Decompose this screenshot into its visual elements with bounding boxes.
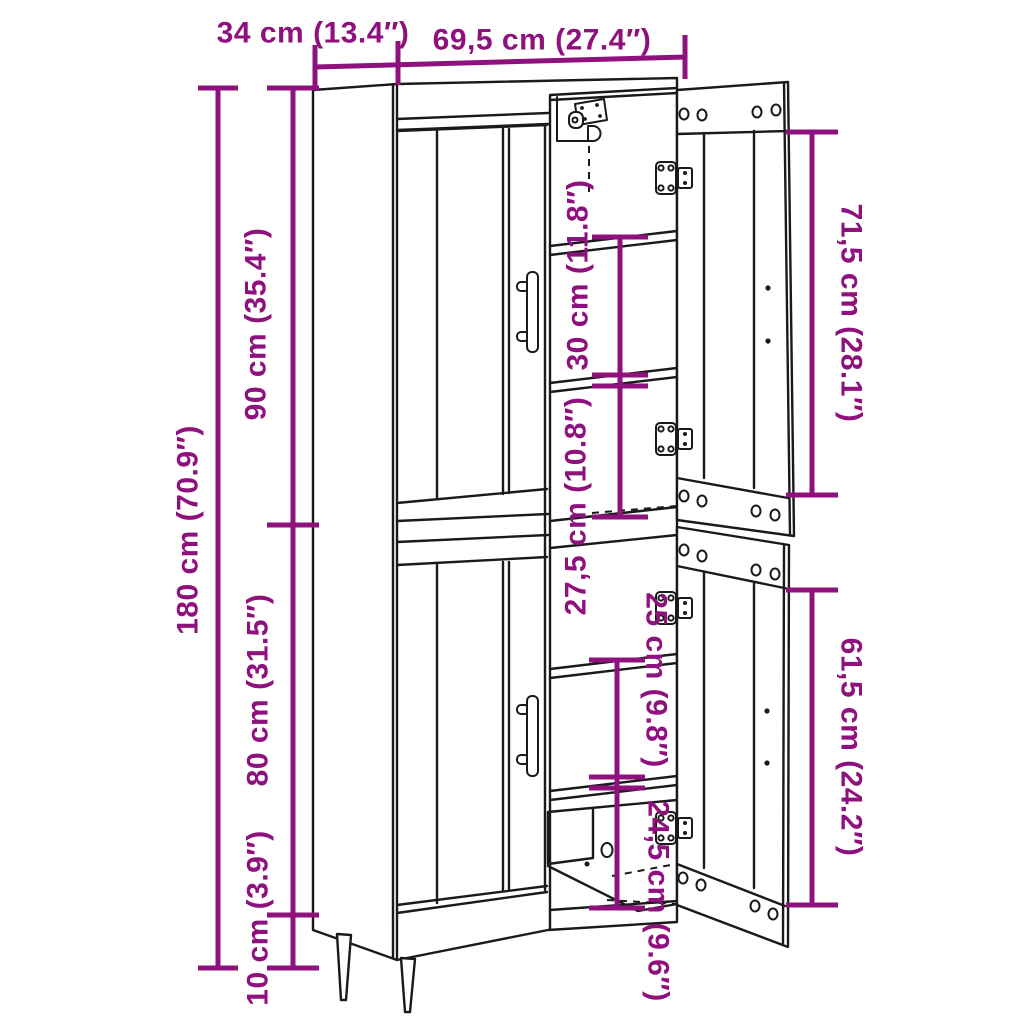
dimension-line — [786, 590, 838, 905]
screw — [683, 601, 687, 605]
dimension-label-lower-section: 80 cm (31.5″) — [242, 594, 275, 787]
dimension-upper-door: 71,5 cm (28.1″) — [786, 132, 868, 495]
legs — [337, 934, 415, 1012]
dimension-label-upper-lower-gap: 27,5 cm (10.8″) — [560, 397, 593, 616]
dimension-label-lower-shelf-gap: 25 cm (9.8″) — [640, 592, 673, 767]
screw — [595, 103, 599, 107]
lower-left-door — [397, 557, 547, 913]
pin-hole — [764, 708, 769, 713]
screw — [683, 442, 687, 446]
dimension-lower-interior: 25 cm (9.8″) 24,5 cm (9.6″) — [589, 592, 675, 1001]
door-handle — [517, 272, 538, 352]
pin-hole — [765, 285, 770, 290]
handle-bar — [527, 696, 538, 776]
pin-hole — [585, 862, 590, 867]
screw — [598, 114, 602, 118]
dimension-label-total-height: 180 cm (70.9″) — [172, 425, 205, 635]
screw — [683, 611, 687, 615]
dimension-diagram: 34 cm (13.4″) 69,5 cm (27.4″) 180 cm (70… — [0, 0, 1024, 1024]
dimension-line — [267, 88, 319, 968]
dimension-depth-width: 34 cm (13.4″) 69,5 cm (27.4″) — [217, 17, 685, 90]
dimension-label-leg-height: 10 cm (3.9″) — [242, 830, 275, 1005]
dimension-label-width: 69,5 cm (27.4″) — [433, 24, 652, 57]
dimension-label-upper-shelf-gap: 30 cm (11.8″) — [562, 180, 595, 371]
dimension-left-column: 90 cm (35.4″) 80 cm (31.5″) 10 cm (3.9″) — [240, 88, 320, 1006]
door-plank-seams — [397, 125, 547, 503]
screw — [683, 821, 687, 825]
cabinet-dimension-drawing: 34 cm (13.4″) 69,5 cm (27.4″) 180 cm (70… — [0, 0, 1024, 1024]
lower-right-door-open — [677, 527, 789, 947]
mid-frame-band — [397, 507, 677, 548]
upper-left-door — [397, 125, 547, 503]
door-face — [677, 82, 794, 536]
handle-bar — [527, 272, 538, 352]
screw — [683, 181, 687, 185]
door-handle — [517, 696, 538, 776]
dimension-label-upper-door: 71,5 cm (28.1″) — [835, 204, 868, 423]
dimension-line — [589, 660, 645, 908]
dimension-label-upper-section: 90 cm (35.4″) — [240, 228, 273, 421]
upper-right-door-open — [677, 82, 794, 536]
dimension-label-depth: 34 cm (13.4″) — [217, 17, 410, 50]
screw — [683, 831, 687, 835]
hinge-cup-side — [588, 126, 601, 141]
dimension-line — [592, 237, 648, 517]
hinge-arm — [569, 112, 583, 128]
screw — [580, 106, 584, 110]
dimension-label-lower-door: 61,5 cm (24.2″) — [835, 638, 868, 857]
dimension-lower-door: 61,5 cm (24.2″) — [786, 590, 868, 905]
cable-hole — [602, 843, 613, 857]
screw — [683, 171, 687, 175]
door-face — [677, 527, 789, 947]
screw — [683, 432, 687, 436]
leg — [337, 934, 351, 1000]
pin-hole — [764, 760, 769, 765]
leg — [401, 958, 415, 1012]
pin-hole — [765, 338, 770, 343]
dimension-total-height: 180 cm (70.9″) — [172, 88, 239, 968]
cabinet-line-art — [313, 78, 794, 1012]
door-plank-seams — [397, 557, 547, 913]
dimension-label-lower-bottom-gap: 24,5 cm (9.6″) — [642, 800, 675, 1001]
